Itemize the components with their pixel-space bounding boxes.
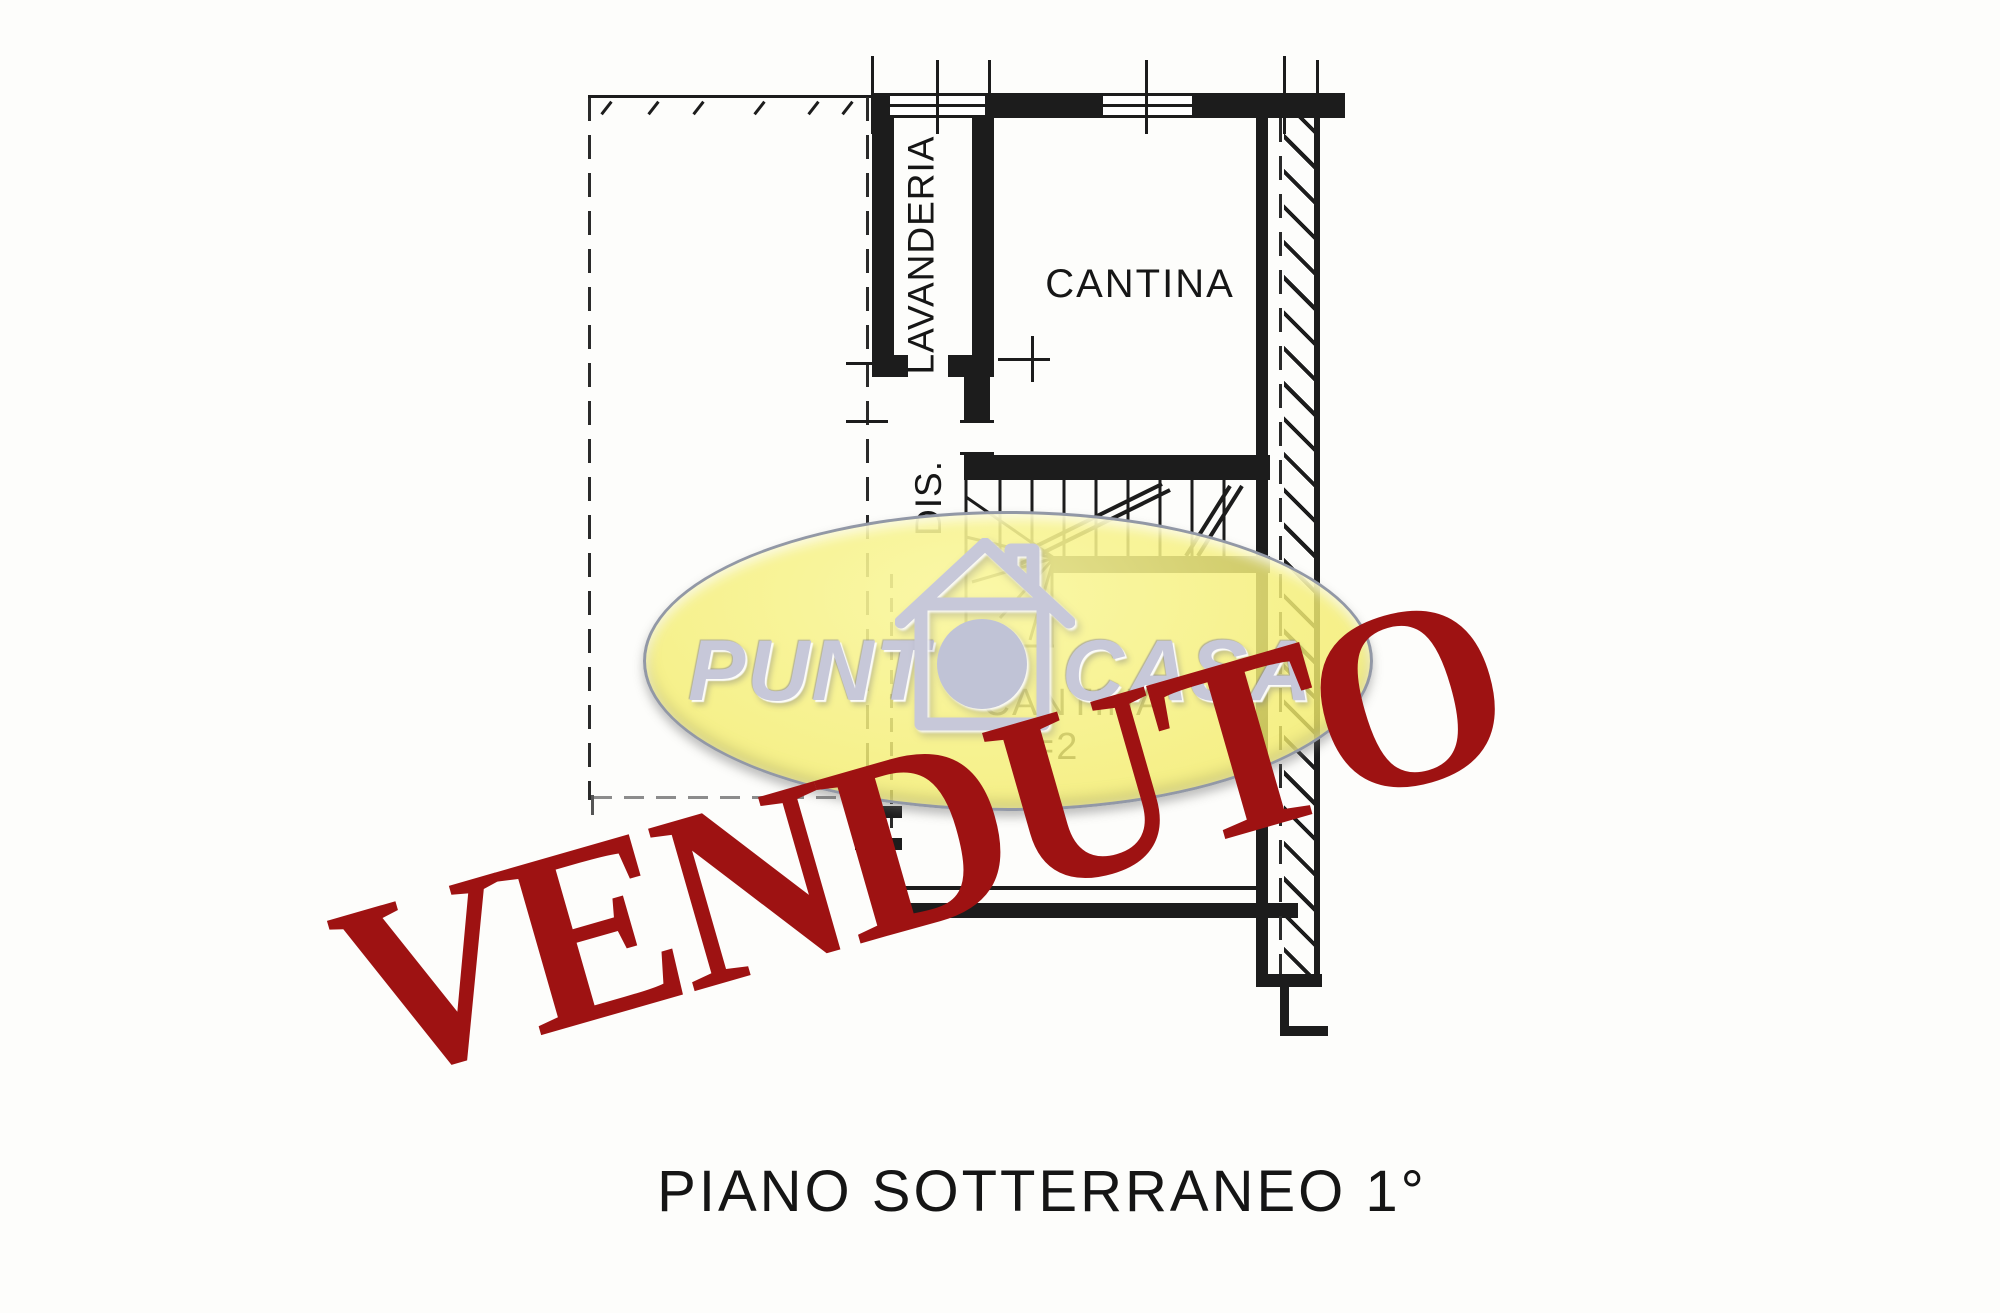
wall-tick (841, 101, 853, 115)
wall-tick (1031, 336, 1034, 382)
boundary-step (1256, 974, 1322, 987)
wall-tick (1145, 60, 1148, 134)
bigroom-top-wall (588, 95, 875, 98)
wall-tick (692, 101, 704, 115)
boundary-step (1280, 1026, 1328, 1036)
room-label-lavanderia: LAVANDERIA (899, 130, 943, 380)
bigroom-left-wall (588, 97, 591, 800)
wall-tick (647, 101, 659, 115)
floor-caption: PIANO SOTTERRANEO 1° (42, 1158, 2000, 1225)
scanned-floorplan-page: LAVANDERIA DIS. CANTINA CANTINA =2 PUNT … (0, 0, 2000, 1313)
lavanderia-right-wall (972, 118, 994, 358)
room-label-cantina-top: CANTINA (1040, 262, 1240, 307)
wall-tick (807, 101, 819, 115)
wall-tick (936, 60, 939, 134)
dis-right-wall (964, 377, 990, 422)
wall-tick (753, 101, 765, 115)
lavanderia-bottom-wall (948, 355, 994, 377)
wall-tick (600, 101, 612, 115)
wall-tick (998, 358, 1050, 361)
door-opening-line (960, 420, 994, 423)
lavanderia-left-wall (872, 118, 894, 377)
wall-tick (846, 420, 888, 423)
